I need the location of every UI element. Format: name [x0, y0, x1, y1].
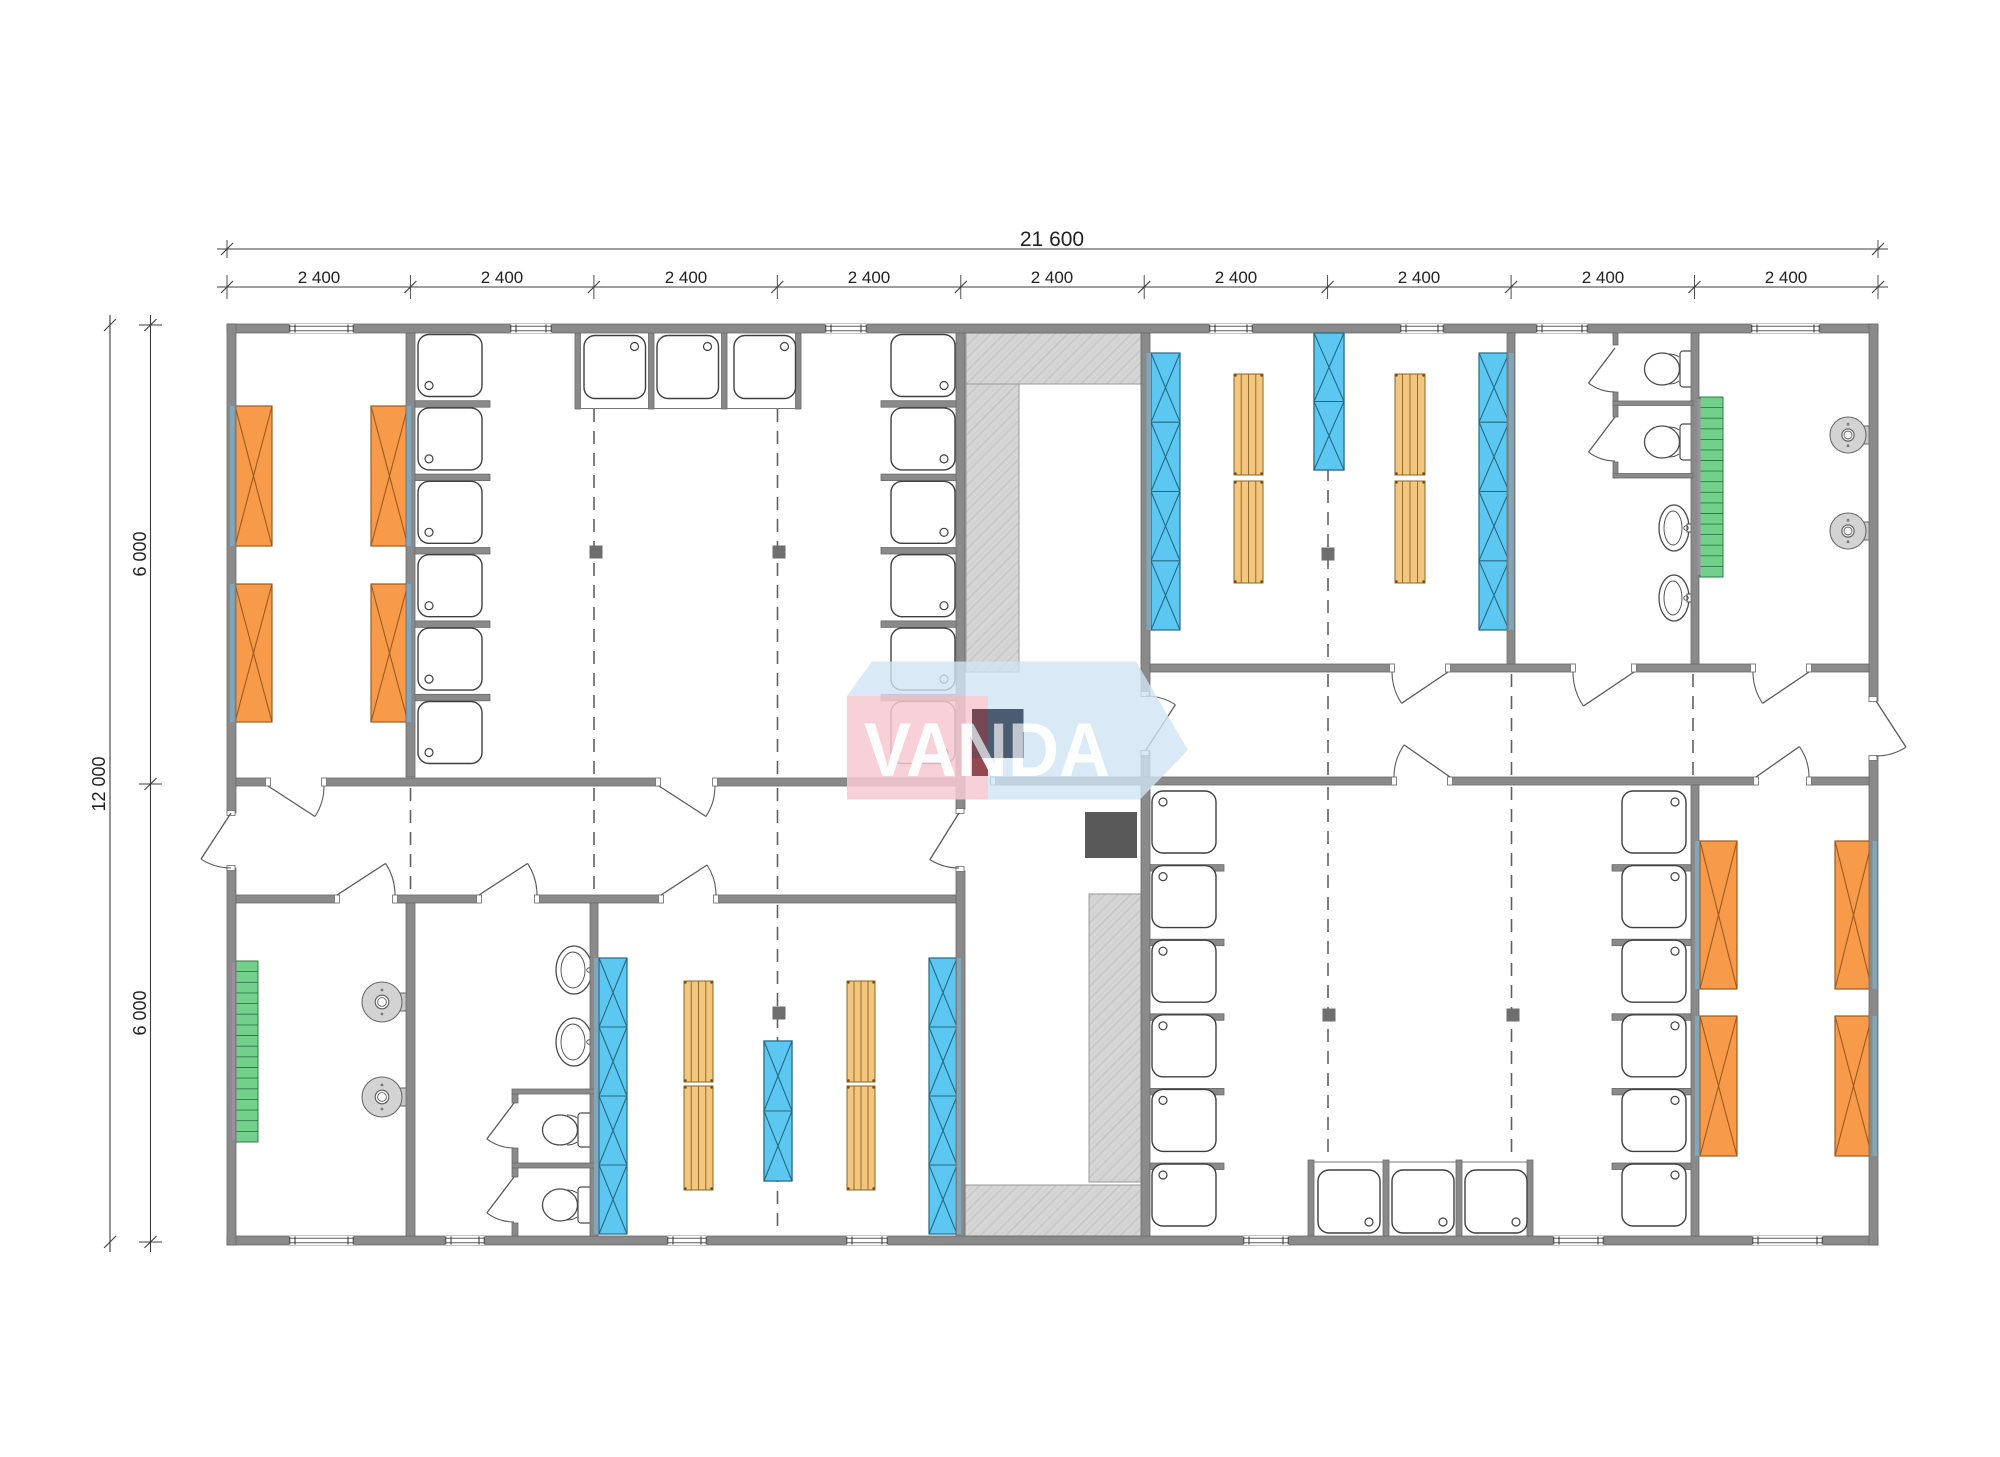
- svg-text:6 000: 6 000: [130, 990, 150, 1035]
- svg-text:6 000: 6 000: [130, 531, 150, 576]
- svg-text:2 400: 2 400: [481, 268, 524, 287]
- svg-text:21 600: 21 600: [1020, 228, 1084, 251]
- svg-text:2 400: 2 400: [1031, 268, 1074, 287]
- svg-text:2 400: 2 400: [848, 268, 891, 287]
- svg-text:2 400: 2 400: [665, 268, 708, 287]
- svg-text:12 000: 12 000: [89, 756, 109, 811]
- svg-text:2 400: 2 400: [1765, 268, 1808, 287]
- svg-text:2 400: 2 400: [1215, 268, 1258, 287]
- svg-text:2 400: 2 400: [1398, 268, 1441, 287]
- svg-text:2 400: 2 400: [1582, 268, 1625, 287]
- svg-text:2 400: 2 400: [298, 268, 341, 287]
